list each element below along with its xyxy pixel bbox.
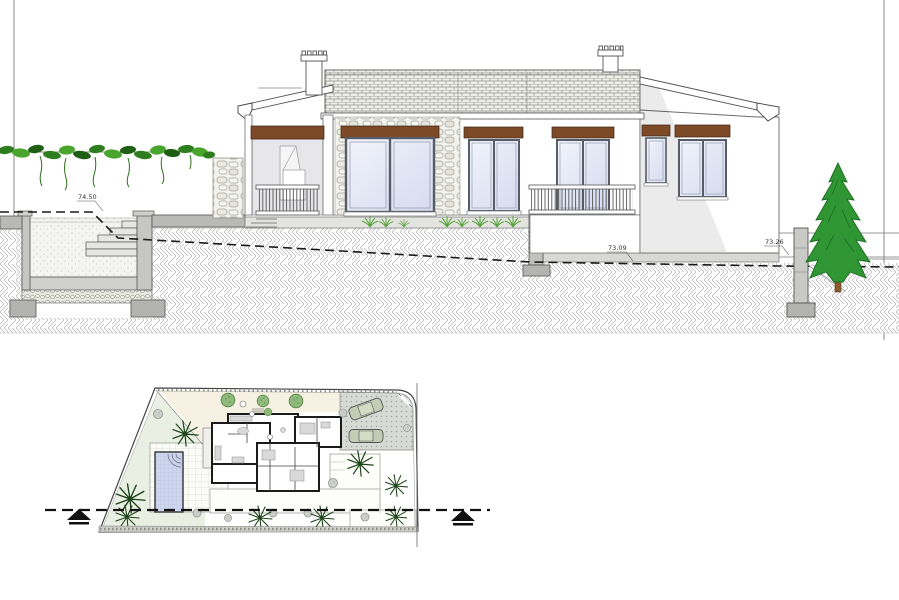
plan-pool <box>155 452 183 512</box>
lower-terrace-slab <box>543 253 779 262</box>
conifer-tree <box>806 163 870 292</box>
pool-wall-left <box>22 214 30 290</box>
section-arrow-right <box>451 510 475 526</box>
porch-railing <box>258 189 318 211</box>
terrace-railing <box>529 185 635 214</box>
right-chimney <box>598 46 623 72</box>
main-roof-tiles <box>325 70 640 113</box>
level-label-garden: 73.26 <box>765 238 784 246</box>
pool-wall-right <box>137 214 152 290</box>
pool-section <box>10 211 165 318</box>
pool-footing-left <box>10 300 36 317</box>
fence-post <box>794 228 808 303</box>
site-plan-view <box>45 383 490 547</box>
drawing-canvas: 74.50 73.09 73.26 <box>0 0 899 600</box>
stone-pillar <box>213 158 243 218</box>
pool-footing-right <box>131 300 165 317</box>
car <box>349 430 383 443</box>
section-arrow-left <box>67 509 91 525</box>
window-e <box>677 140 728 200</box>
level-label-lower-terrace: 73.09 <box>608 244 627 252</box>
window-d <box>644 138 668 186</box>
drawing-sheet: 74.50 73.09 73.26 <box>0 0 899 600</box>
window-b <box>467 140 521 215</box>
level-label-pool-terrace: 74.50 <box>78 193 97 201</box>
elevation-view: 74.50 73.09 73.26 <box>0 0 899 340</box>
pool-floor-slab <box>22 277 152 290</box>
vine-pergola <box>0 144 215 190</box>
window-a <box>344 138 436 216</box>
